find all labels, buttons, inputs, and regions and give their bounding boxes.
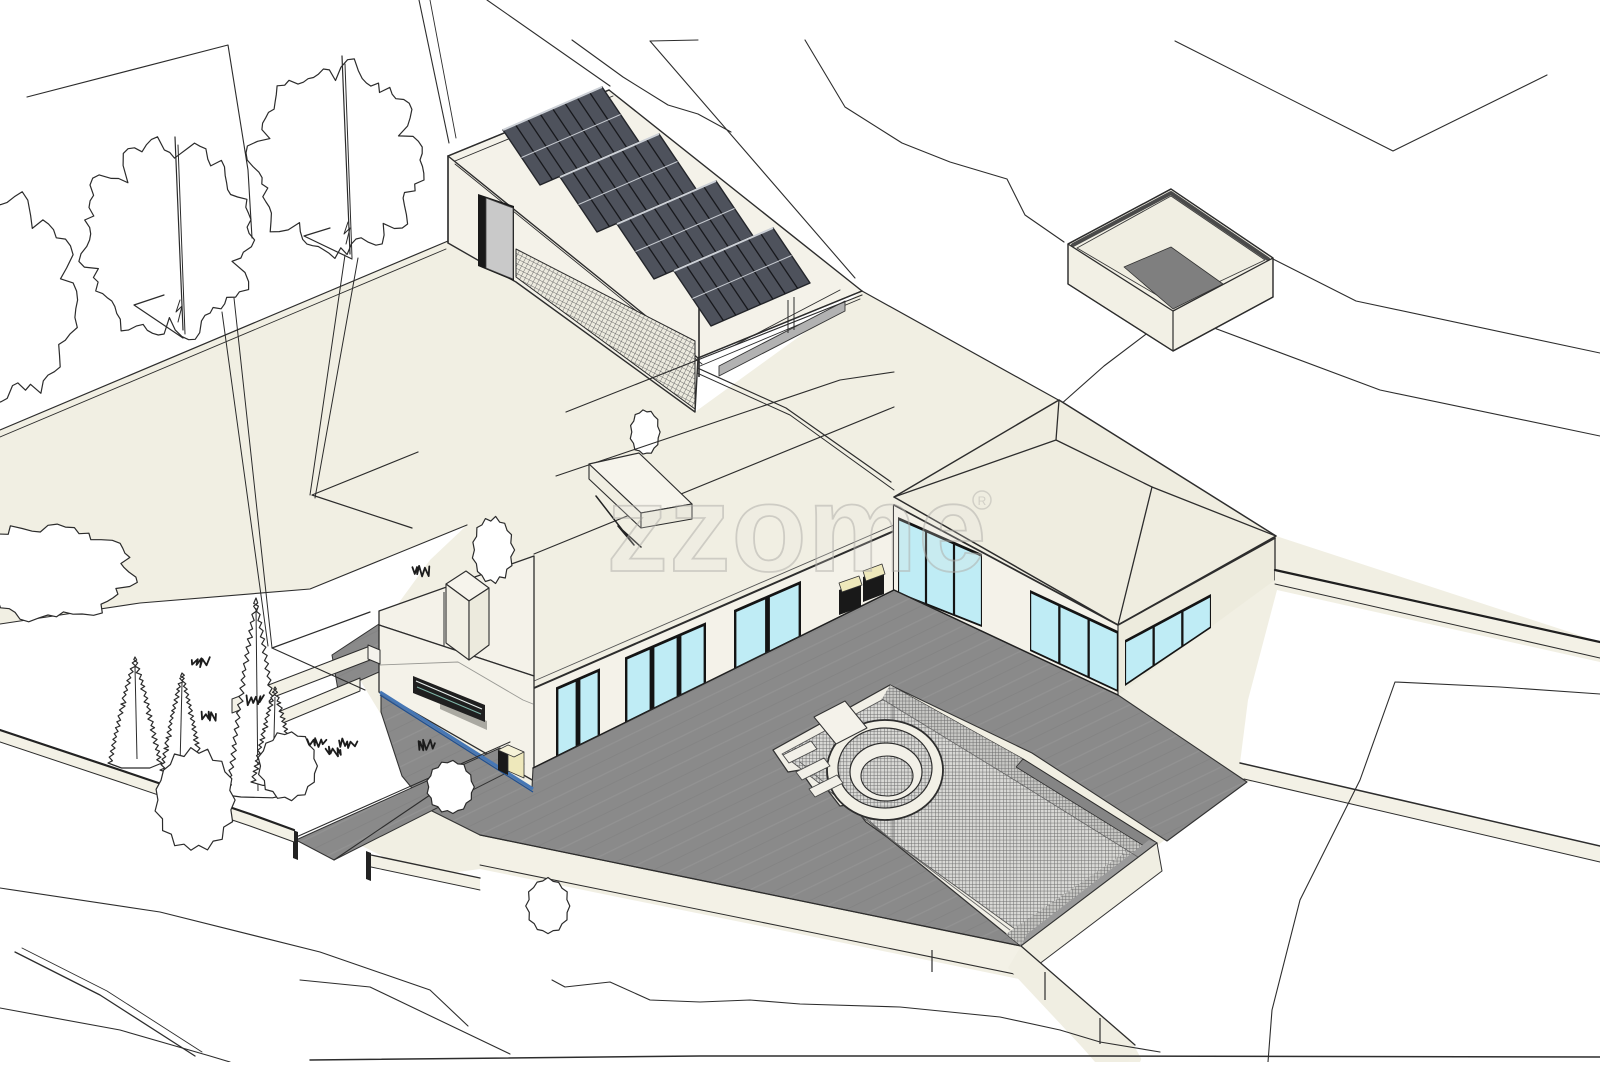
svg-text:R: R — [978, 494, 987, 508]
svg-text:zzome: zzome — [607, 461, 988, 598]
